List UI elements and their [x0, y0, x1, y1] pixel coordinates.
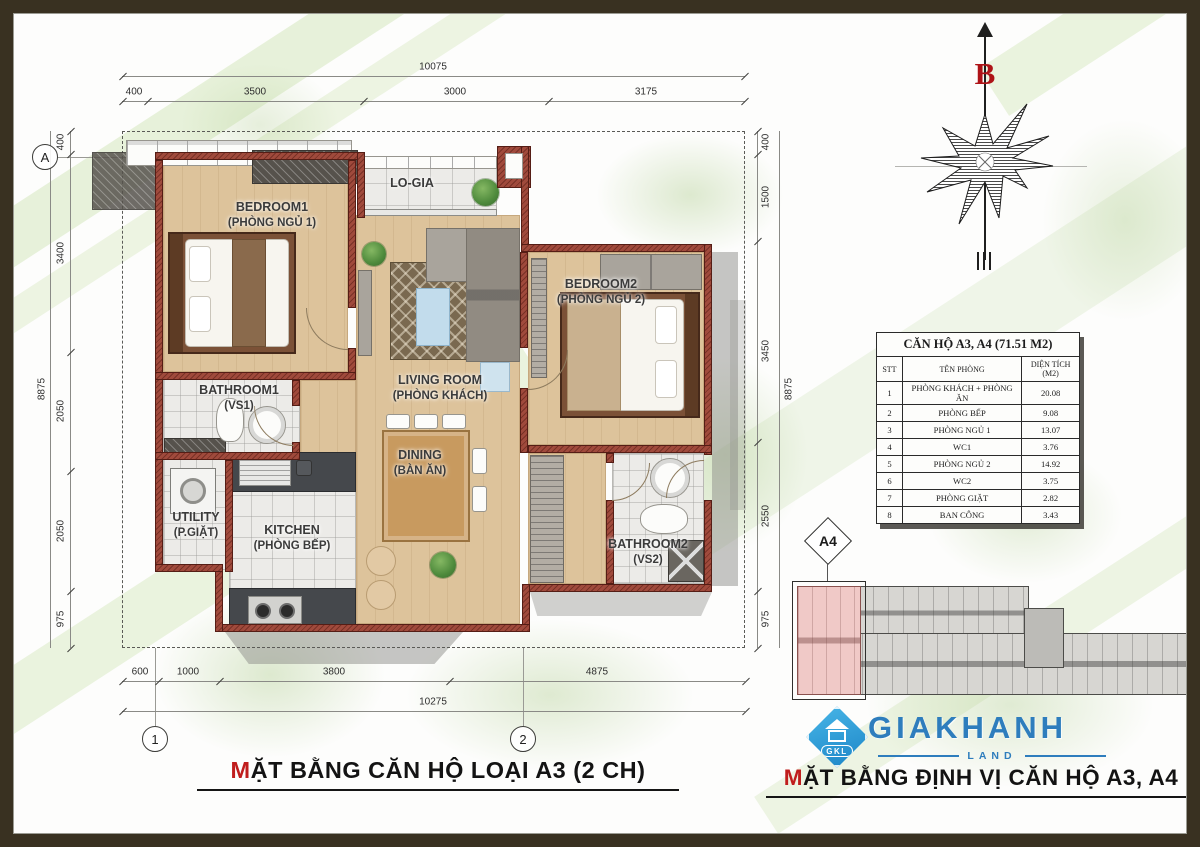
table-header-cell: TÊN PHÒNG [902, 357, 1021, 382]
table-cell: PHÒNG NGỦ 2 [902, 456, 1021, 473]
logia-railing [363, 156, 497, 169]
dim-label: 3175 [635, 87, 657, 98]
drawing-sheet: BEDROOM1(PHÒNG NGỦ 1) LO-GIA LIVING ROOM… [0, 0, 1200, 847]
grid-marker-2: 2 [510, 726, 536, 752]
table-cell: 8 [877, 507, 903, 524]
dining-chair [386, 414, 410, 429]
dim-label: 975 [761, 611, 772, 628]
house-body [828, 730, 846, 742]
table-title-row: CĂN HỘ A3, A4 (71.51 M2) [877, 333, 1080, 357]
table-cell: WC2 [902, 473, 1021, 490]
unit-selection-box [792, 581, 866, 700]
dim-line [50, 131, 51, 648]
wall-segment [528, 445, 712, 453]
room-label-kitchen: KITCHEN(PHÒNG BẾP) [254, 523, 331, 553]
wall-segment [606, 453, 614, 463]
bed-headboard [685, 294, 698, 416]
logo-monogram: GKL [821, 745, 853, 757]
dim-label: 3450 [761, 340, 772, 362]
grid-marker-1: 1 [142, 726, 168, 752]
kitchen-faucet [296, 460, 312, 476]
wall-segment [704, 500, 712, 592]
stove-burner [255, 603, 271, 619]
dim-label: 3000 [444, 87, 466, 98]
wall-segment [155, 452, 300, 460]
dim-label: 10075 [419, 62, 447, 73]
compass-arrow-icon [977, 22, 993, 37]
dim-line [779, 131, 780, 648]
wall-segment [215, 564, 223, 632]
table-title: CĂN HỘ A3, A4 (71.51 M2) [877, 333, 1080, 357]
plan-title-left: MẶT BẰNG CĂN HỘ LOẠI A3 (2 CH) [197, 757, 679, 791]
plant-icon [472, 179, 499, 206]
table-row: 2PHÒNG BẾP9.08 [877, 405, 1080, 422]
room-label-bedroom1: BEDROOM1(PHÒNG NGỦ 1) [228, 200, 316, 230]
stool [366, 546, 396, 576]
room-label-bedroom2: BEDROOM2(PHÒNG NGỦ 2) [557, 277, 645, 307]
corridor-closet [530, 455, 564, 583]
title-accent-letter: M [231, 757, 251, 783]
room-label-logia: LO-GIA [390, 176, 434, 192]
table-cell: 3.76 [1022, 439, 1080, 456]
dim-label: 1500 [761, 186, 772, 208]
dim-line [70, 131, 71, 648]
table-cell: PHÒNG NGỦ 1 [902, 422, 1021, 439]
plant-icon [362, 242, 386, 266]
wall-segment [225, 460, 233, 572]
table-cell: 1 [877, 382, 903, 405]
dim-label: 1000 [177, 667, 199, 678]
grid-axis-line [523, 648, 524, 726]
dining-chair [442, 414, 466, 429]
bed-bedroom2 [560, 292, 700, 418]
bed-bedroom1 [168, 232, 296, 354]
brand-subtitle: LAND [967, 750, 1016, 762]
dining-chair [414, 414, 438, 429]
table-cell: BAN CÔNG [902, 507, 1021, 524]
table-row: 7PHÒNG GIẶT2.82 [877, 490, 1080, 507]
shaft-window [505, 153, 523, 179]
table-cell: WC1 [902, 439, 1021, 456]
dim-label: 600 [132, 667, 149, 678]
bed-pillow [189, 296, 211, 332]
dim-label: 8875 [784, 378, 795, 400]
table-row: 8BAN CÔNG3.43 [877, 507, 1080, 524]
dim-label: 4875 [586, 667, 608, 678]
table-cell: 5 [877, 456, 903, 473]
room-label-living: LIVING ROOM(PHÒNG KHÁCH) [393, 373, 488, 403]
brand-rule [1025, 755, 1106, 757]
dim-label: 2050 [56, 520, 67, 542]
dim-label: 3500 [244, 87, 266, 98]
dim-line [122, 101, 745, 102]
dim-label: 8875 [37, 378, 48, 400]
wall-segment [520, 388, 528, 453]
bed-pillow [655, 360, 677, 398]
wall-segment [155, 152, 365, 160]
dim-line [757, 131, 758, 648]
table-cell: 4 [877, 439, 903, 456]
wall-segment [357, 152, 365, 218]
compass-rose-icon [915, 96, 1055, 226]
coffee-table [416, 288, 450, 346]
bed-pillow [189, 246, 211, 282]
table-cell: PHÒNG BẾP [902, 405, 1021, 422]
table-cell: 13.07 [1022, 422, 1080, 439]
room-label-bathroom1: BATHROOM1(VS1) [199, 383, 279, 413]
wall-segment [292, 380, 300, 406]
table-header-row: STT TÊN PHÒNG DIỆN TÍCH (M2) [877, 357, 1080, 382]
table-cell: 14.92 [1022, 456, 1080, 473]
wall-segment [528, 584, 712, 592]
table-header-cell: STT [877, 357, 903, 382]
kitchen-sink [239, 459, 291, 486]
dining-chair [472, 448, 487, 474]
table-cell: 9.08 [1022, 405, 1080, 422]
grid-marker-a: A [32, 144, 58, 170]
keyplan-lower-wing [846, 633, 1191, 695]
dim-tick [67, 128, 75, 136]
brand-underline: LAND [878, 750, 1106, 762]
dim-tick [67, 349, 75, 357]
keyplan-core [1024, 608, 1064, 668]
dim-line [122, 681, 745, 682]
bed-blanket [567, 299, 621, 411]
table-row: 4WC13.76 [877, 439, 1080, 456]
toilet-bathroom2 [640, 504, 688, 534]
table-row: 3PHÒNG NGỦ 113.07 [877, 422, 1080, 439]
logia-sliding-door [363, 209, 497, 216]
stove-burner [279, 603, 295, 619]
dining-chair [472, 486, 487, 512]
dim-label: 975 [56, 611, 67, 628]
brand-name: GIAKHANH [868, 710, 1118, 746]
dim-label: 3800 [323, 667, 345, 678]
wall-segment [521, 244, 712, 252]
dim-tick [67, 468, 75, 476]
grid-axis-line [155, 648, 156, 726]
table-cell: 3.75 [1022, 473, 1080, 490]
bed-headboard [170, 234, 183, 352]
table-cell: 2.82 [1022, 490, 1080, 507]
washing-machine [170, 468, 216, 514]
table-row: 1PHÒNG KHÁCH + PHÒNG ĂN20.08 [877, 382, 1080, 405]
room-label-bathroom2: BATHROOM2(VS2) [608, 537, 688, 567]
dim-label: 2050 [56, 400, 67, 422]
stool [366, 580, 396, 610]
table-cell: 2 [877, 405, 903, 422]
wall-segment [155, 564, 223, 572]
title-text: ẶT BẰNG ĐỊNH VỊ CĂN HỘ A3, A4 [803, 765, 1178, 790]
table-header-cell: DIỆN TÍCH (M2) [1022, 357, 1080, 382]
house-icon [825, 719, 849, 729]
sofa-chaise [466, 228, 520, 362]
table-cell: 7 [877, 490, 903, 507]
dining-table [382, 430, 470, 542]
wall-segment [704, 244, 712, 455]
dim-tick [67, 588, 75, 596]
dim-label: 3400 [56, 242, 67, 264]
wall-segment [520, 252, 528, 348]
dim-label: 2550 [761, 505, 772, 527]
area-table: CĂN HỘ A3, A4 (71.51 M2) STT TÊN PHÒNG D… [876, 332, 1080, 524]
table-cell: 20.08 [1022, 382, 1080, 405]
hall-floor [300, 380, 356, 454]
compass-south-marks [977, 252, 993, 270]
brand-rule [878, 755, 959, 757]
title-accent-letter: M [784, 765, 803, 790]
room-label-utility: UTILITY(P.GIẶT) [172, 510, 219, 540]
dim-tick [754, 645, 762, 653]
title-text: ẶT BẰNG CĂN HỘ LOẠI A3 (2 CH) [251, 757, 646, 783]
tv-console [358, 270, 372, 356]
dim-line [122, 76, 745, 77]
unit-label: A4 [812, 525, 844, 557]
dim-tick [754, 588, 762, 596]
wall-segment [155, 160, 163, 572]
table-cell: 6 [877, 473, 903, 490]
dim-label: 10275 [419, 697, 447, 708]
table-cell: 3 [877, 422, 903, 439]
wall-segment [155, 372, 356, 380]
wall-segment [215, 624, 530, 632]
table-row: 6WC23.75 [877, 473, 1080, 490]
stove [248, 596, 302, 624]
table-row: 5PHÒNG NGỦ 214.92 [877, 456, 1080, 473]
room-label-dining: DINING(BÀN ĂN) [394, 448, 446, 478]
dim-label: 400 [126, 87, 143, 98]
plan-title-right: MẶT BẰNG ĐỊNH VỊ CĂN HỘ A3, A4 [766, 765, 1196, 798]
compass-label: B [963, 56, 1007, 92]
table-cell: PHÒNG KHÁCH + PHÒNG ĂN [902, 382, 1021, 405]
dim-label: 400 [761, 134, 772, 151]
bed-pillow [655, 306, 677, 344]
dim-line [122, 711, 745, 712]
table-cell: PHÒNG GIẶT [902, 490, 1021, 507]
table-cell: 3.43 [1022, 507, 1080, 524]
dim-label: 400 [56, 134, 67, 151]
unit-label-diamond: A4 [804, 517, 852, 565]
plant-icon [430, 552, 456, 578]
bed-runner [232, 239, 266, 347]
wall-segment [348, 160, 356, 308]
washer-drum [180, 478, 206, 504]
